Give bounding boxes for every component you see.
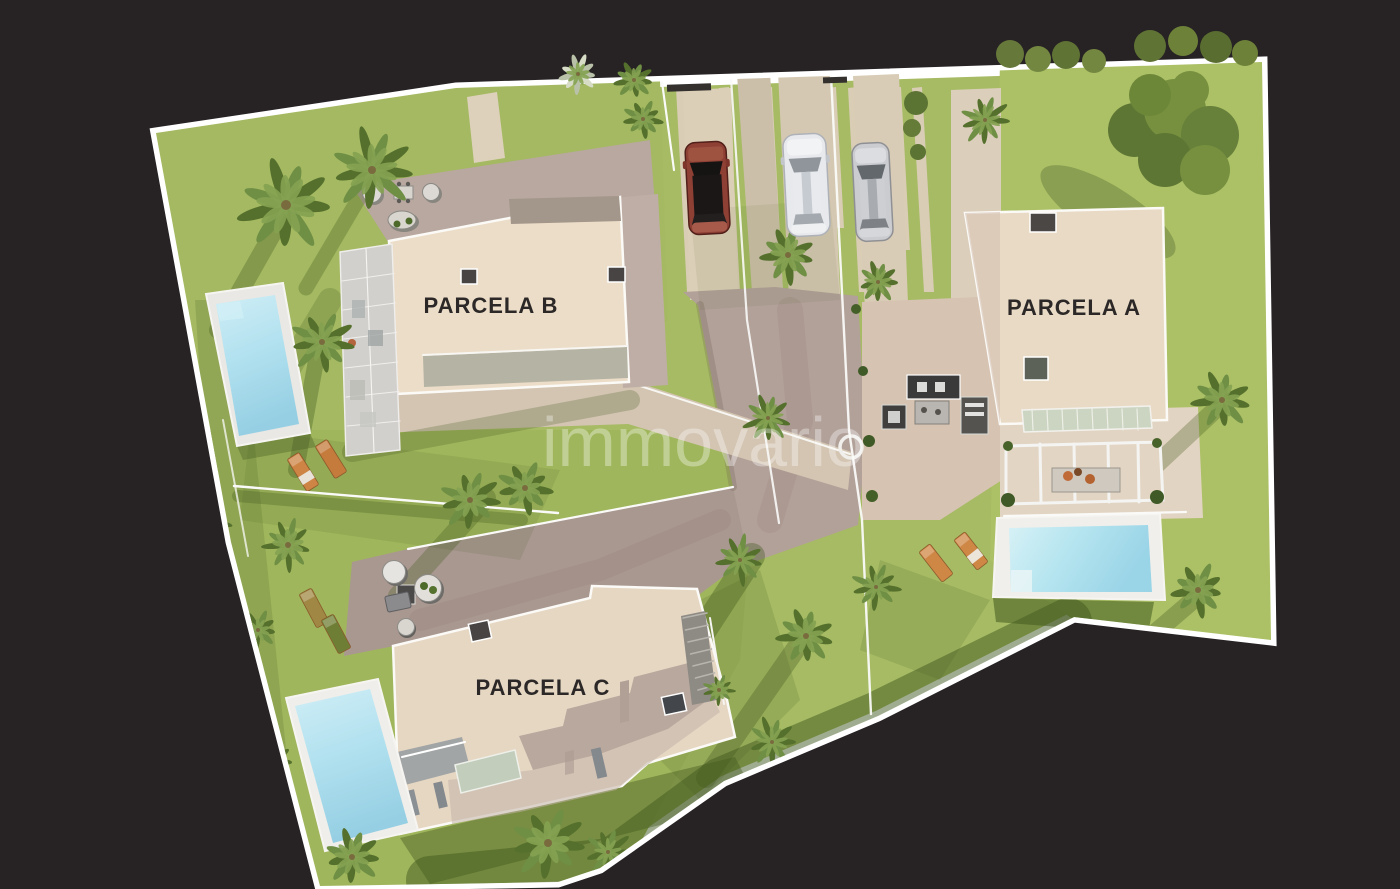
svg-text:PARCELA A: PARCELA A: [1007, 295, 1141, 320]
svg-text:PARCELA C: PARCELA C: [476, 675, 611, 700]
svg-text:immovario: immovario: [542, 403, 865, 481]
svg-text:PARCELA B: PARCELA B: [424, 293, 559, 318]
